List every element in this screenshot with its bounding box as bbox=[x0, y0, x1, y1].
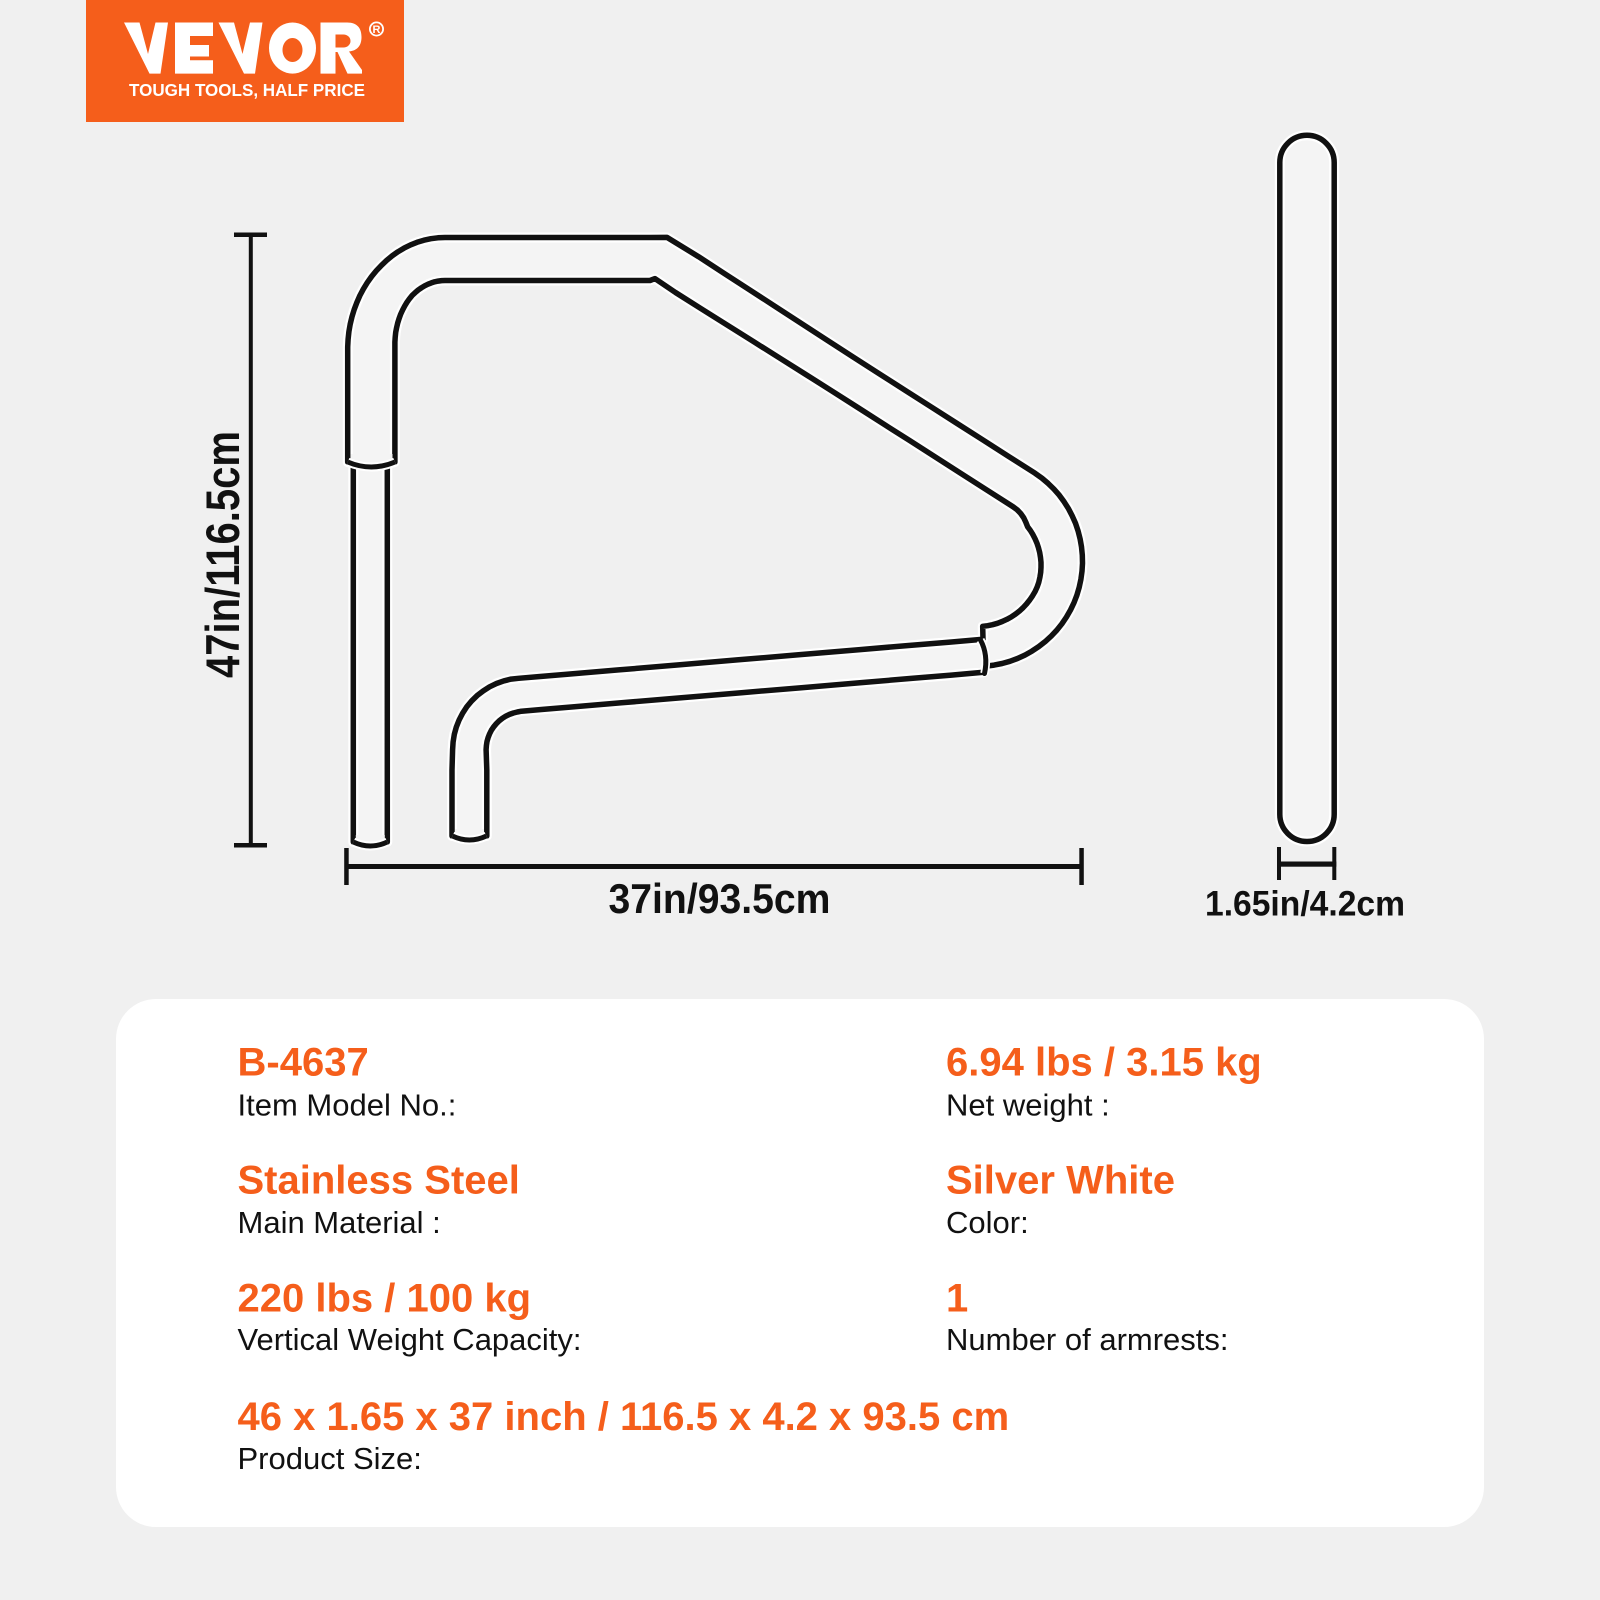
svg-text:Color:: Color: bbox=[946, 1205, 1029, 1240]
svg-text:Item Model No.:: Item Model No.: bbox=[238, 1088, 457, 1123]
svg-text:Stainless Steel: Stainless Steel bbox=[238, 1159, 520, 1203]
svg-text:TOUGH TOOLS, HALF PRICE: TOUGH TOOLS, HALF PRICE bbox=[129, 80, 365, 100]
svg-text:Main Material :: Main Material : bbox=[238, 1205, 441, 1240]
svg-text:Vertical Weight Capacity:: Vertical Weight Capacity: bbox=[238, 1322, 582, 1357]
svg-text:220 lbs / 100 kg: 220 lbs / 100 kg bbox=[238, 1277, 532, 1321]
svg-text:Product Size:: Product Size: bbox=[238, 1441, 422, 1476]
svg-text:47in/116.5cm: 47in/116.5cm bbox=[196, 431, 249, 678]
svg-text:46 x 1.65 x 37 inch / 116.5 x: 46 x 1.65 x 37 inch / 116.5 x 4.2 x 93.5… bbox=[238, 1395, 1010, 1439]
svg-text:Net weight :: Net weight : bbox=[946, 1088, 1110, 1123]
svg-text:1.65in/4.2cm: 1.65in/4.2cm bbox=[1205, 885, 1405, 924]
svg-text:6.94 lbs / 3.15 kg: 6.94 lbs / 3.15 kg bbox=[946, 1041, 1262, 1085]
svg-text:Silver White: Silver White bbox=[946, 1159, 1175, 1203]
svg-text:R: R bbox=[373, 24, 381, 36]
svg-text:B-4637: B-4637 bbox=[238, 1041, 369, 1085]
svg-text:37in/93.5cm: 37in/93.5cm bbox=[609, 875, 831, 922]
svg-text:1: 1 bbox=[946, 1277, 968, 1321]
svg-text:Number of armrests:: Number of armrests: bbox=[946, 1322, 1229, 1357]
